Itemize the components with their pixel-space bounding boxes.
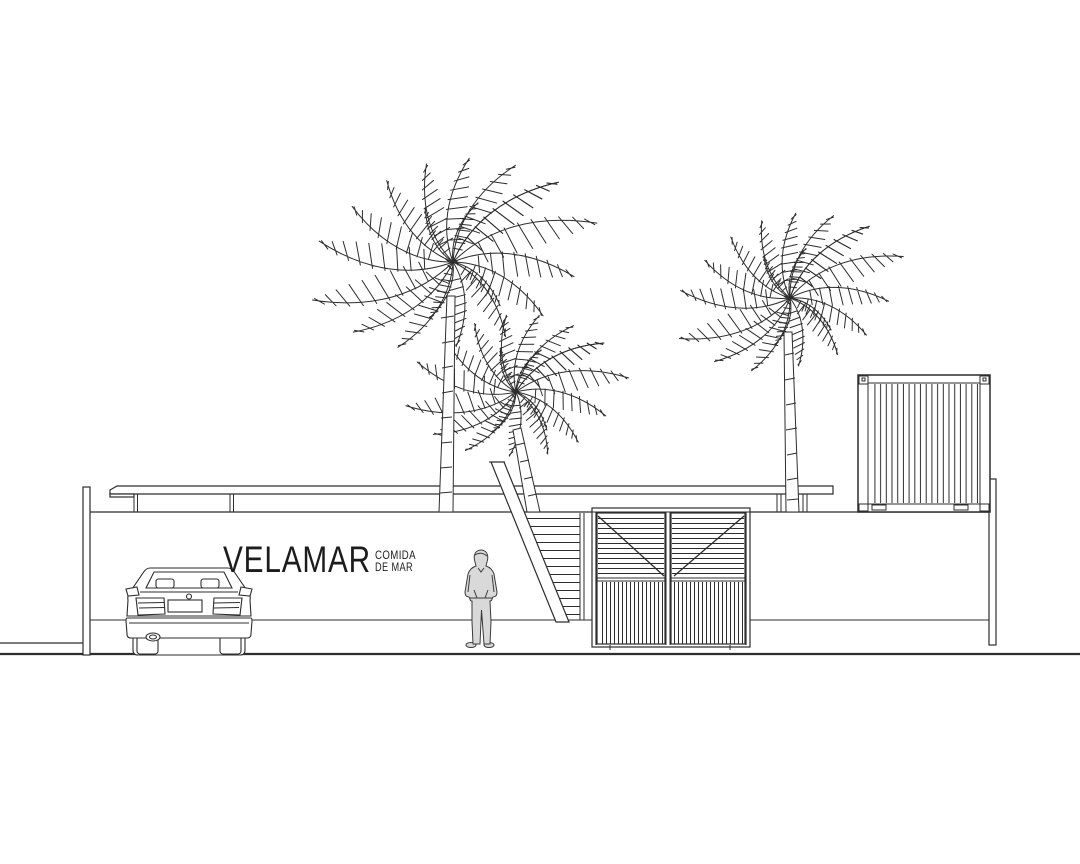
car-headrest-right <box>201 579 219 588</box>
gate-panel-left <box>597 513 665 644</box>
car-bumper <box>126 618 252 638</box>
person-silhouette <box>465 550 497 644</box>
shipping-container <box>858 375 990 512</box>
wall-signage: VELAMAR COMIDA DE MAR <box>223 539 416 580</box>
container-corrugation <box>870 384 978 503</box>
car-taillight-right <box>213 598 242 615</box>
left-end-post <box>83 487 90 655</box>
gate-panel-right <box>671 513 745 644</box>
car-headrest-left <box>156 579 174 588</box>
elevation-drawing: VELAMAR COMIDA DE MAR <box>0 0 1080 864</box>
palm-trunks <box>439 296 799 512</box>
car-mirror-right <box>239 587 252 596</box>
brand-text: VELAMAR <box>223 539 371 580</box>
elevation-sheet: VELAMAR COMIDA DE MAR <box>0 0 1080 864</box>
car-mirror-left <box>126 587 139 596</box>
louvered-double-gate <box>592 508 750 650</box>
sedan-rear-view <box>126 568 252 655</box>
tagline-line2: DE MAR <box>375 560 413 574</box>
palm-trunk-tall <box>439 296 455 512</box>
palm-trunk-right <box>784 332 799 512</box>
car-exhaust <box>146 633 160 641</box>
car-taillight-left <box>136 598 165 615</box>
standing-person <box>465 550 497 648</box>
car-license-plate <box>168 600 202 612</box>
